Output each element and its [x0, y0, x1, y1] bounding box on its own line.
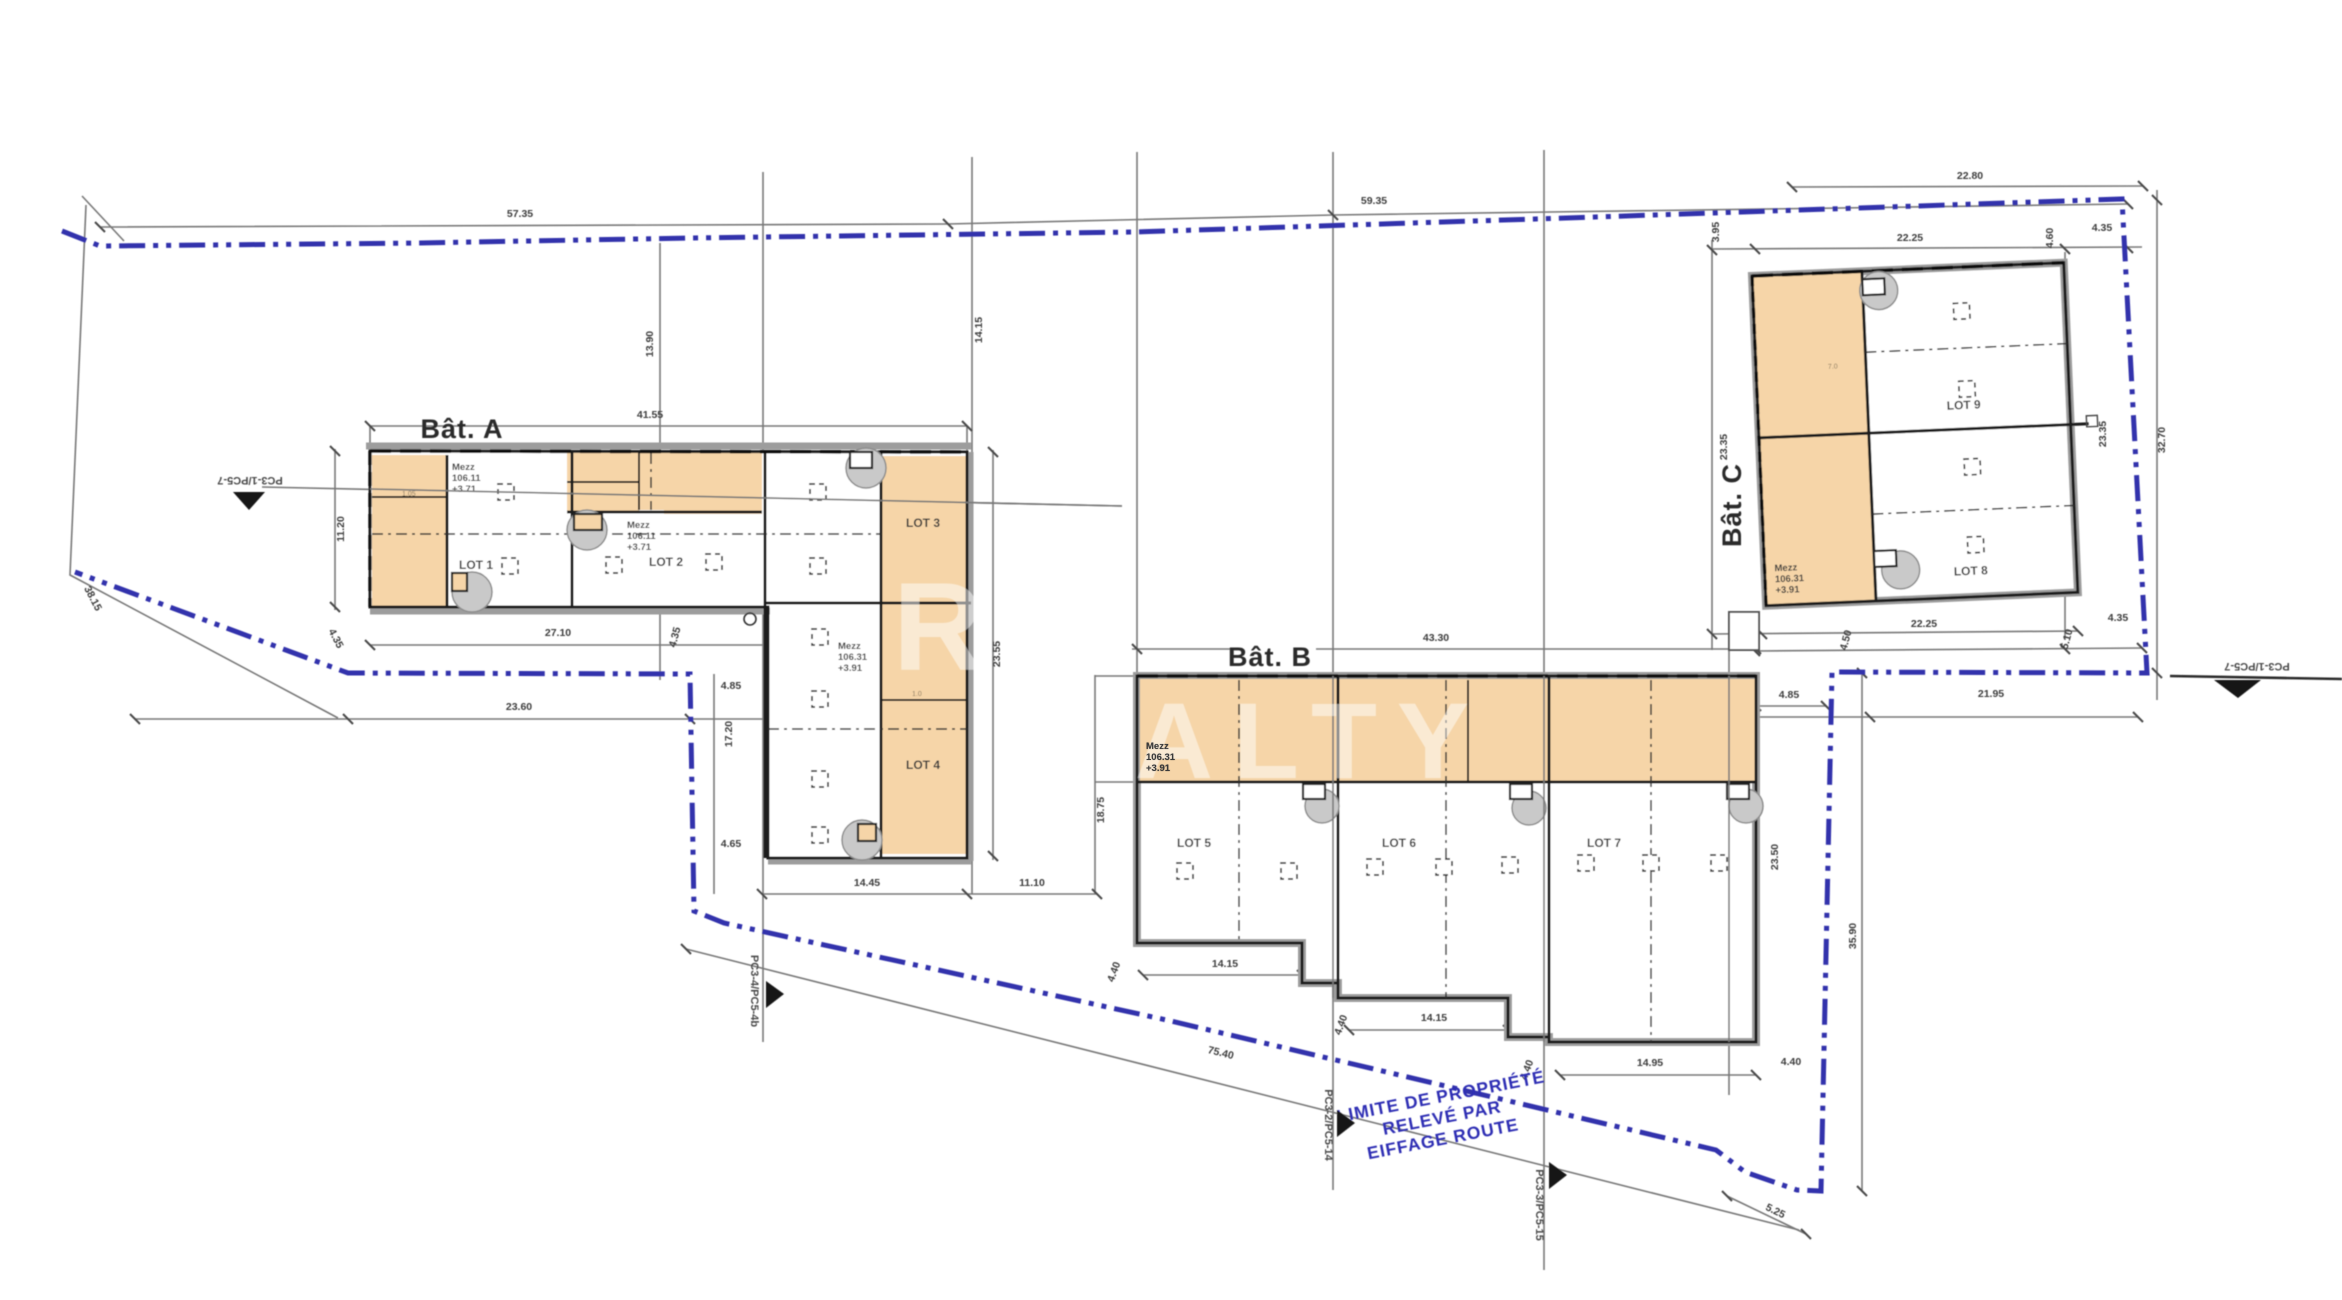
svg-text:7.0: 7.0	[1828, 363, 1838, 370]
svg-text:106.31: 106.31	[1146, 752, 1176, 763]
svg-text:14.15: 14.15	[1212, 958, 1238, 970]
svg-text:LOT 5: LOT 5	[1177, 836, 1211, 850]
svg-text:LOT 4: LOT 4	[906, 758, 940, 772]
svg-text:Bât. C: Bât. C	[1717, 463, 1747, 547]
svg-text:PC3-4/PC5-4b: PC3-4/PC5-4b	[748, 955, 760, 1027]
svg-text:106.11: 106.11	[452, 473, 481, 484]
svg-text:PC3-1/PC5-7: PC3-1/PC5-7	[217, 474, 282, 486]
svg-text:LOT 2: LOT 2	[649, 555, 683, 569]
svg-text:17.20: 17.20	[723, 721, 735, 747]
svg-text:23.60: 23.60	[506, 701, 532, 713]
svg-text:21.95: 21.95	[1978, 688, 2004, 700]
svg-text:14.15: 14.15	[1421, 1012, 1447, 1024]
svg-text:4.35: 4.35	[2092, 222, 2113, 234]
svg-text:Bât. B: Bât. B	[1228, 642, 1312, 672]
svg-text:4.40: 4.40	[1781, 1056, 1802, 1068]
svg-text:Mezz: Mezz	[452, 462, 475, 473]
svg-text:PC3-3/PC5-15: PC3-3/PC5-15	[1533, 1169, 1545, 1241]
svg-text:27.10: 27.10	[545, 627, 571, 639]
svg-text:106.11: 106.11	[627, 531, 656, 542]
svg-text:LOT 7: LOT 7	[1587, 836, 1621, 850]
svg-text:23.50: 23.50	[1769, 844, 1781, 870]
svg-text:LOT 8: LOT 8	[1954, 563, 1989, 578]
svg-text:22.80: 22.80	[1957, 170, 1983, 182]
svg-text:23.35: 23.35	[1718, 434, 1730, 460]
svg-text:4.65: 4.65	[721, 838, 742, 850]
svg-text:+3.91: +3.91	[838, 663, 863, 674]
svg-text:+3.71: +3.71	[452, 484, 477, 495]
svg-text:LOT 6: LOT 6	[1382, 836, 1416, 850]
svg-text:LOT 9: LOT 9	[1946, 397, 1981, 412]
svg-text:+3.91: +3.91	[1146, 763, 1171, 774]
svg-text:Mezz: Mezz	[627, 520, 650, 531]
svg-text:11.20: 11.20	[335, 516, 347, 542]
svg-text:4.35: 4.35	[2108, 612, 2129, 624]
svg-text:+3.91: +3.91	[1775, 584, 1800, 596]
svg-text:Mezz: Mezz	[838, 641, 861, 652]
svg-text:32.70: 32.70	[2156, 427, 2168, 453]
svg-text:13.90: 13.90	[644, 331, 656, 357]
svg-text:4.85: 4.85	[1779, 689, 1800, 701]
svg-text:22.25: 22.25	[1911, 618, 1937, 630]
svg-text:+3.71: +3.71	[627, 542, 652, 553]
svg-text:4.85: 4.85	[721, 680, 742, 692]
svg-text:18.75: 18.75	[1095, 797, 1107, 823]
svg-text:PC3-1/PC5-7: PC3-1/PC5-7	[2224, 660, 2289, 672]
svg-text:106.31: 106.31	[1775, 573, 1805, 585]
svg-text:11.10: 11.10	[1019, 877, 1045, 889]
svg-text:4.60: 4.60	[2044, 228, 2056, 249]
svg-text:23.55: 23.55	[991, 641, 1003, 667]
svg-text:Mezz: Mezz	[1146, 741, 1169, 752]
svg-text:23.35: 23.35	[2097, 421, 2109, 447]
svg-text:43.30: 43.30	[1423, 632, 1449, 644]
svg-text:14.15: 14.15	[973, 317, 985, 343]
svg-text:59.35: 59.35	[1361, 195, 1387, 207]
svg-text:1.05: 1.05	[402, 491, 416, 498]
svg-text:R: R	[893, 558, 983, 697]
svg-text:Bât. A: Bât. A	[420, 414, 503, 444]
svg-text:3.95: 3.95	[1710, 222, 1722, 243]
svg-text:35.90: 35.90	[1847, 923, 1859, 949]
svg-text:PC3-2/PC5-14: PC3-2/PC5-14	[1322, 1089, 1334, 1161]
svg-text:LOT 1: LOT 1	[459, 558, 493, 572]
svg-text:57.35: 57.35	[507, 208, 533, 220]
svg-text:ALTY: ALTY	[1135, 680, 1489, 801]
svg-text:106.31: 106.31	[838, 652, 868, 663]
svg-text:14.45: 14.45	[854, 877, 880, 889]
svg-text:41.55: 41.55	[637, 409, 663, 421]
svg-text:14.95: 14.95	[1637, 1057, 1663, 1069]
svg-text:LOT 3: LOT 3	[906, 516, 940, 530]
svg-text:22.25: 22.25	[1897, 232, 1923, 244]
